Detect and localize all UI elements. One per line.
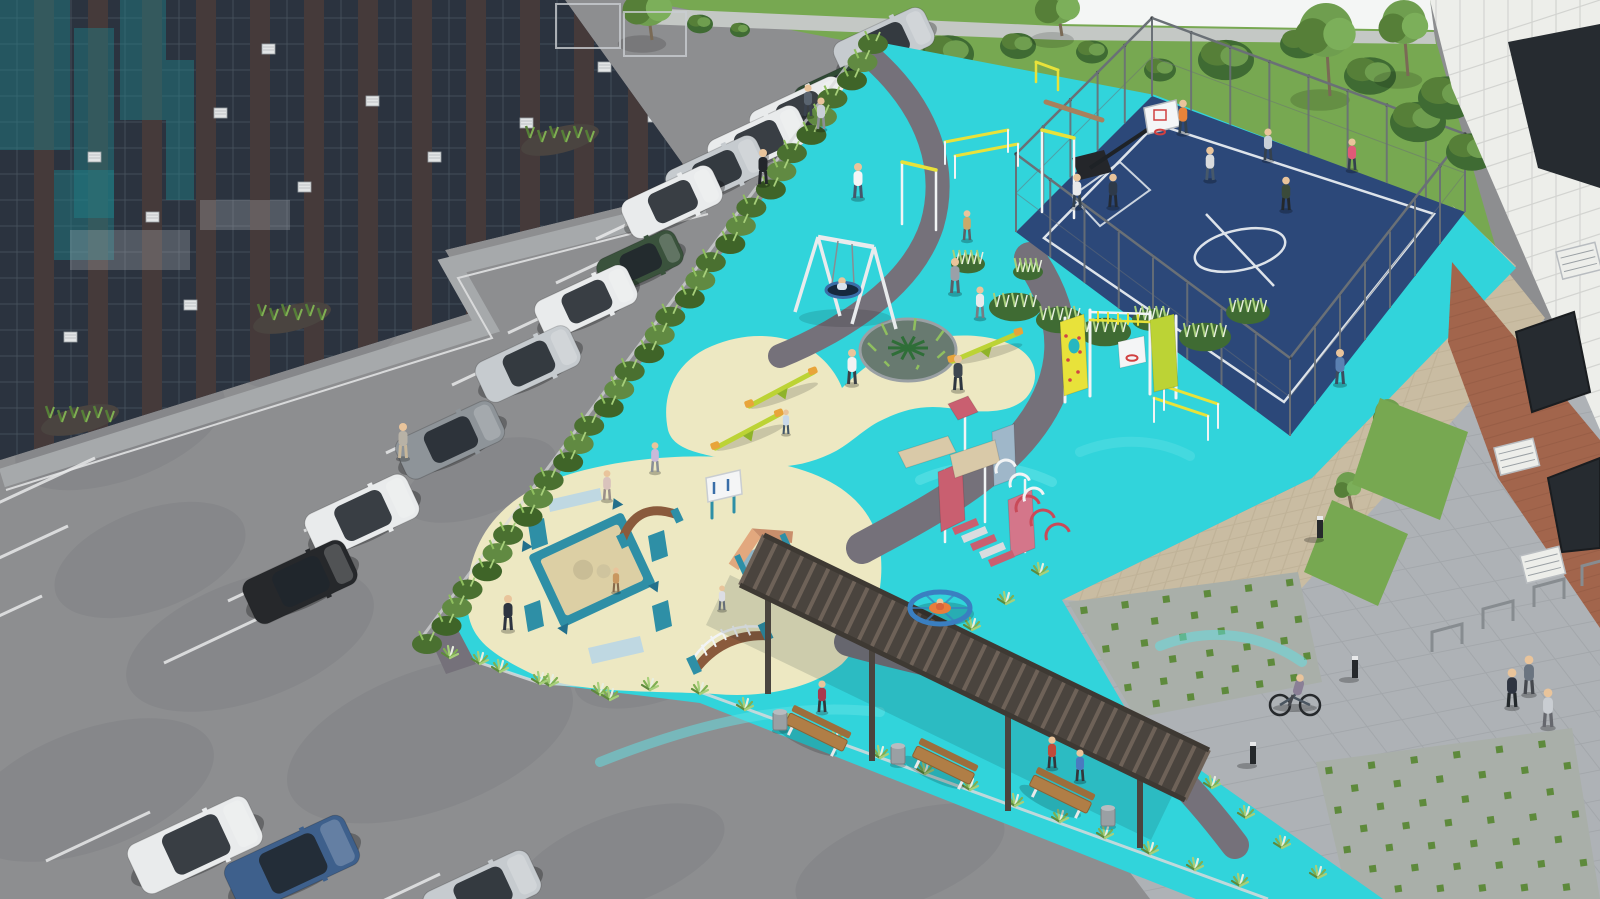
hedge-bush (604, 379, 634, 399)
grass-paver (1495, 745, 1503, 753)
grass-paver (1325, 767, 1333, 775)
grass-paver (1221, 687, 1229, 695)
ac-unit (214, 108, 227, 118)
hedge-bush (685, 270, 715, 290)
hedge-bush (736, 198, 766, 218)
grass-paver (1368, 761, 1376, 769)
grass-paver (1351, 784, 1359, 792)
hedge-bush (564, 434, 594, 454)
courtyard-render (0, 0, 1600, 899)
grass-paver (1169, 655, 1177, 663)
grass-paver (1132, 661, 1140, 669)
grass-paver (1243, 643, 1251, 651)
grass-paver (1546, 788, 1554, 796)
grass-paver (1393, 780, 1401, 788)
grass-paver (1162, 595, 1170, 603)
ac-unit (88, 152, 101, 162)
bush (1076, 40, 1108, 63)
grass-paver (1140, 639, 1148, 647)
climb-hold (1066, 358, 1070, 362)
grass-paver (1111, 623, 1119, 631)
hedge-bush (513, 507, 543, 527)
hedge-bush (655, 307, 685, 327)
grass-paver (1334, 806, 1342, 814)
hedge-bush (696, 252, 726, 272)
grass-paver (1377, 802, 1385, 810)
hedge-bush (553, 452, 583, 472)
grass-paver (1196, 671, 1204, 679)
hedge-bush (675, 289, 705, 309)
grass-paver (1191, 611, 1199, 619)
grass-paver (1294, 615, 1302, 623)
grass-paver (1563, 883, 1571, 891)
hedge-bush (777, 143, 807, 163)
grass-paver (1360, 824, 1368, 832)
swinging-child-body (837, 283, 847, 290)
shrub-clump (989, 293, 1041, 322)
grass-paver (1385, 844, 1393, 852)
ac-unit (262, 44, 275, 54)
grass-paver (1563, 762, 1571, 770)
grass-paver (1453, 862, 1461, 870)
grass-paver (1436, 775, 1444, 783)
hedge-bush (472, 561, 502, 581)
climb-hold (1077, 336, 1081, 340)
bush (730, 23, 750, 37)
grass-paver (1230, 606, 1238, 614)
grass-paver (1495, 861, 1503, 869)
hedge-bush (523, 489, 553, 509)
grass-paver (1343, 846, 1351, 854)
grass-paver (1152, 700, 1160, 708)
grass-paver (1478, 771, 1486, 779)
hedge-bush (858, 34, 888, 54)
shrub-clump (1179, 323, 1231, 352)
hedge-bush (634, 343, 664, 363)
climb-hold (1076, 370, 1080, 374)
grass-paver (1444, 819, 1452, 827)
glass-reflection (0, 0, 70, 150)
grass-paver (1410, 756, 1418, 764)
grass-paver (1470, 840, 1478, 848)
hedge-bush (615, 361, 645, 381)
ac-unit (184, 300, 197, 310)
bush (687, 15, 713, 34)
grass-paver (1580, 859, 1588, 867)
grass-paver (1124, 683, 1132, 691)
grass-paver (1478, 884, 1486, 892)
panel-hole (1069, 339, 1080, 354)
grass-paver (1270, 600, 1278, 608)
grass-paver (1571, 810, 1579, 818)
hedge-bush (837, 70, 867, 90)
hedge-bush (645, 325, 675, 345)
grass-paver (1520, 884, 1528, 892)
grass-paver (1554, 835, 1562, 843)
glass-reflection (120, 0, 166, 120)
grass-paver (1419, 799, 1427, 807)
hedge-bush (442, 598, 472, 618)
trash-can (772, 709, 788, 734)
grass-paver (1369, 865, 1377, 873)
hedge-bush (766, 161, 796, 181)
hedge-bush (412, 634, 442, 654)
hedge-bush (483, 543, 513, 563)
hedge-bush (726, 216, 756, 236)
grass-paver (1256, 680, 1264, 688)
car-reflection (70, 230, 190, 270)
hedge-bush (574, 416, 604, 436)
glass-reflection (166, 60, 194, 200)
grass-paver (1512, 838, 1520, 846)
grass-paver (1487, 816, 1495, 824)
grass-paver (1394, 885, 1402, 893)
grass-paver (1286, 579, 1294, 587)
play-panel (1150, 314, 1178, 392)
trash-can (890, 743, 906, 768)
grass-paver (1529, 813, 1537, 821)
grass-paver (1102, 645, 1110, 653)
grass-paver (1256, 621, 1264, 629)
hedge-bush (715, 234, 745, 254)
bush (1144, 58, 1176, 81)
climb-hold (1064, 334, 1068, 338)
grass-paver (1537, 860, 1545, 868)
hedge-bush (493, 525, 523, 545)
grass-paver (1151, 617, 1159, 625)
grass-paver (1267, 658, 1275, 666)
circular-planter (860, 318, 956, 381)
aerial-scene (0, 0, 1600, 899)
play-panel (1060, 314, 1088, 396)
grass-paver (1206, 649, 1214, 657)
hedge-bush (594, 398, 624, 418)
grass-paver (1538, 740, 1546, 748)
ac-unit (598, 62, 611, 72)
grass-paver (1402, 822, 1410, 830)
grass-paver (1121, 601, 1129, 609)
grass-paver (1428, 842, 1436, 850)
trash-can (1100, 805, 1116, 830)
swing-shadow (799, 309, 891, 327)
grass-paver (1411, 864, 1419, 872)
grass-paver (1187, 693, 1195, 701)
grass-paver (1436, 884, 1444, 892)
ac-unit (298, 182, 311, 192)
grass-paver (1080, 606, 1088, 614)
grass-paver (1504, 791, 1512, 799)
grass-paver (1203, 590, 1211, 598)
hedge-bush (847, 52, 877, 72)
grass-paver (1461, 795, 1469, 803)
car-reflection (200, 200, 290, 230)
ac-unit (366, 96, 379, 106)
grass-paver (1453, 751, 1461, 759)
ac-unit (64, 332, 77, 342)
bush (1000, 33, 1036, 59)
grass-paver (1160, 677, 1168, 685)
climb-hold (1068, 378, 1072, 382)
hedge-bush (534, 470, 564, 490)
grass-paver (1280, 637, 1288, 645)
ac-unit (146, 212, 159, 222)
hedge-bush (453, 579, 483, 599)
grass-paver (1521, 766, 1529, 774)
play-panel (1118, 336, 1146, 368)
ac-unit (428, 152, 441, 162)
hedge-bush (432, 616, 462, 636)
climb-hold (1078, 350, 1082, 354)
grass-paver (1245, 584, 1253, 592)
grass-paver (1231, 665, 1239, 673)
